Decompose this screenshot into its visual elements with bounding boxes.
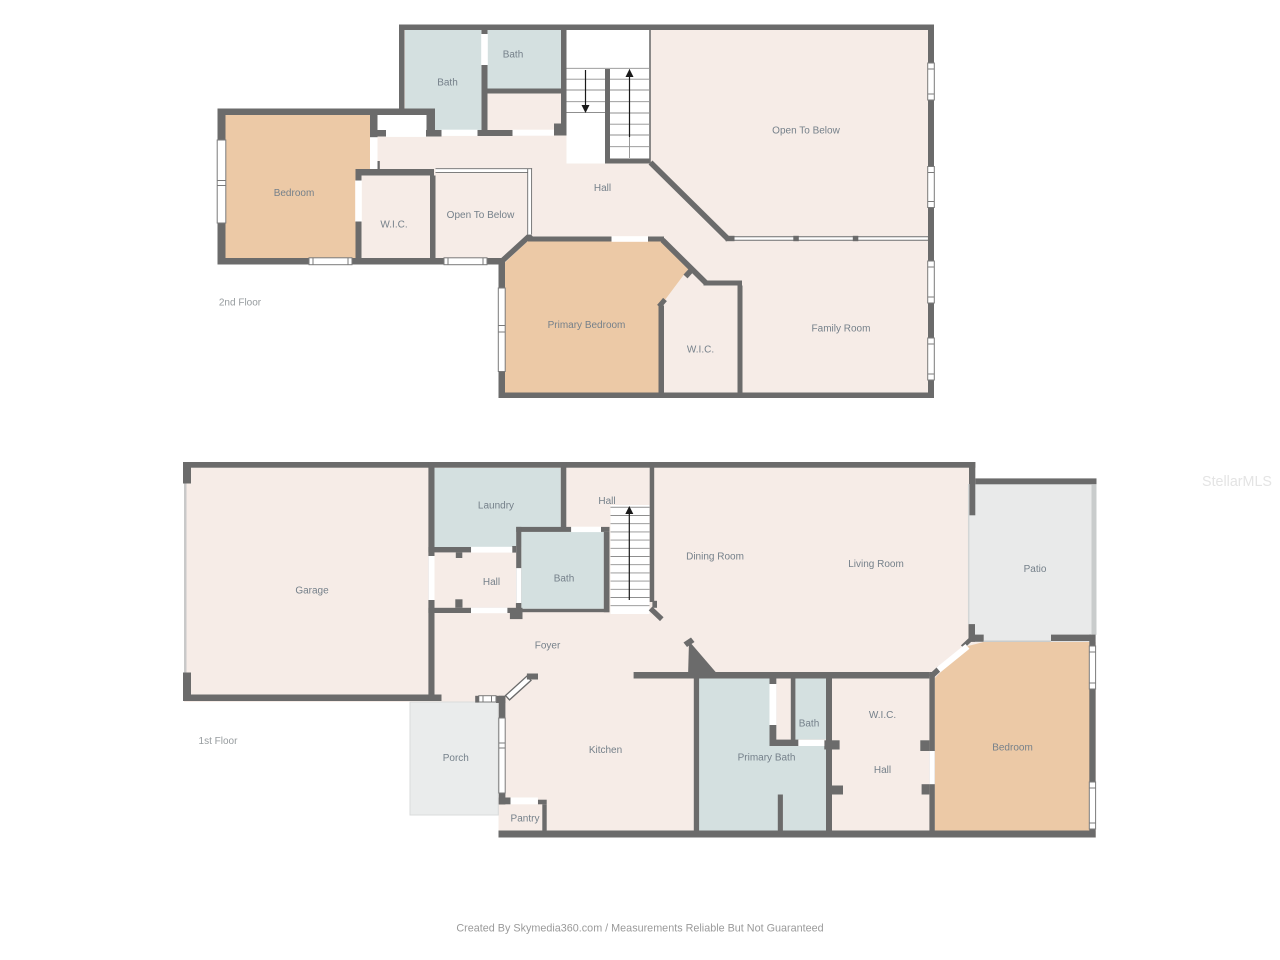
svg-text:Bath: Bath [503, 50, 524, 61]
svg-text:Dining Room: Dining Room [686, 552, 744, 563]
svg-text:Bath: Bath [799, 719, 820, 730]
svg-text:Hall: Hall [594, 183, 611, 194]
svg-text:Bedroom: Bedroom [274, 188, 315, 199]
svg-text:StellarMLS: StellarMLS [1202, 474, 1272, 490]
svg-text:Family Room: Family Room [812, 324, 871, 335]
svg-text:Kitchen: Kitchen [589, 745, 622, 756]
svg-text:Open To Below: Open To Below [447, 210, 515, 221]
svg-text:W.I.C.: W.I.C. [687, 345, 714, 356]
svg-text:Hall: Hall [874, 765, 891, 776]
svg-text:Created By Skymedia360.com / M: Created By Skymedia360.com / Measurement… [456, 923, 823, 935]
svg-text:Pantry: Pantry [511, 814, 540, 825]
svg-text:Foyer: Foyer [535, 641, 561, 652]
svg-text:W.I.C.: W.I.C. [380, 220, 407, 231]
svg-text:Laundry: Laundry [478, 501, 514, 512]
svg-text:Bath: Bath [437, 78, 458, 89]
svg-text:2nd Floor: 2nd Floor [219, 298, 262, 309]
svg-text:Patio: Patio [1024, 564, 1047, 575]
svg-text:Porch: Porch [443, 753, 469, 764]
svg-text:Bath: Bath [554, 574, 575, 585]
svg-text:Open To Below: Open To Below [772, 126, 840, 137]
svg-text:Bedroom: Bedroom [992, 743, 1033, 754]
svg-text:Primary Bath: Primary Bath [738, 753, 796, 764]
svg-text:Hall: Hall [483, 577, 500, 588]
svg-text:W.I.C.: W.I.C. [869, 710, 896, 721]
svg-text:Garage: Garage [295, 586, 329, 597]
svg-text:1st Floor: 1st Floor [199, 736, 239, 747]
svg-text:Primary Bedroom: Primary Bedroom [548, 320, 626, 331]
svg-text:Hall: Hall [598, 496, 615, 507]
svg-text:Living Room: Living Room [848, 559, 904, 570]
